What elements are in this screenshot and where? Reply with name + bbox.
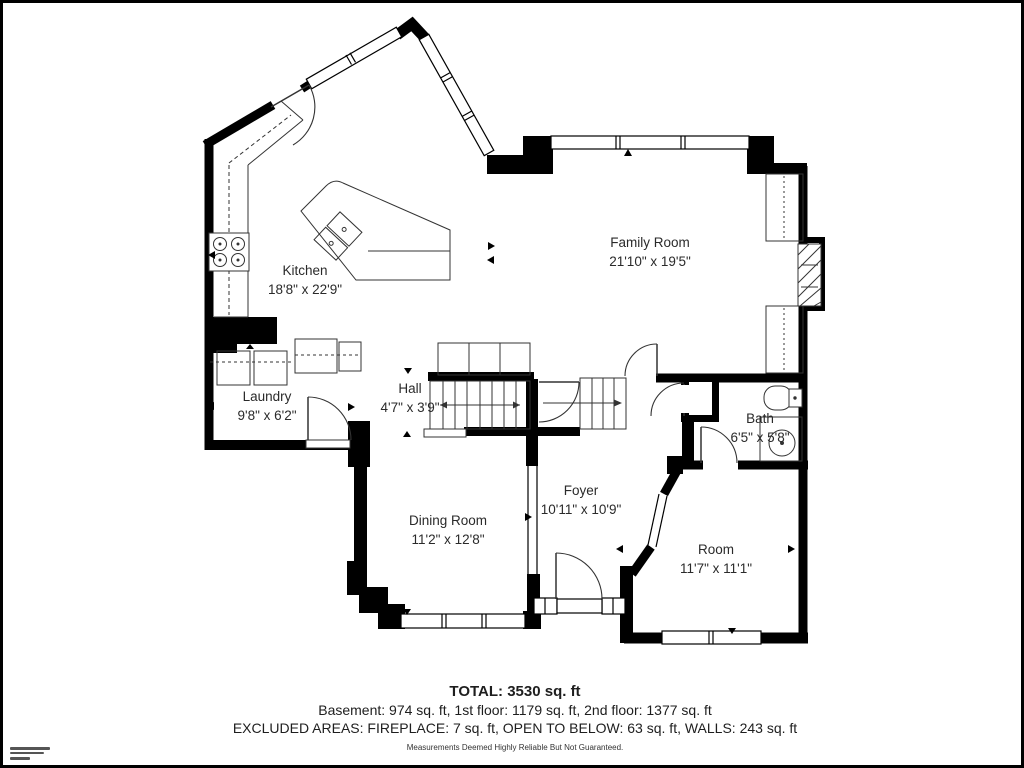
room-label-kitchen: Kitchen 18'8" x 22'9" <box>268 261 342 299</box>
family-room-window <box>551 136 749 149</box>
fine-print-illegible <box>10 747 56 762</box>
floor-areas: Basement: 974 sq. ft, 1st floor: 1179 sq… <box>3 701 1024 719</box>
kitchen-exterior-door <box>271 85 315 145</box>
excluded-areas: EXCLUDED AREAS: FIREPLACE: 7 sq. ft, OPE… <box>3 719 1024 737</box>
room-name: Laundry <box>237 387 296 406</box>
fireplace <box>798 244 821 306</box>
toilet <box>764 386 802 410</box>
room-name: Hall <box>380 379 439 398</box>
room-name: Kitchen <box>268 261 342 280</box>
room-label-foyer: Foyer 10'11" x 10'9" <box>541 481 622 519</box>
disclaimer: Measurements Deemed Highly Reliable But … <box>3 741 1024 755</box>
basement-stairs-door <box>539 382 579 422</box>
room-label-room: Room 11'7" x 11'1" <box>680 540 752 578</box>
staircase <box>424 343 626 437</box>
washer-dryer <box>210 351 293 385</box>
room-dims: 11'7" x 11'1" <box>680 559 752 578</box>
family-to-hall-door <box>625 344 657 376</box>
room-dims: 4'7" x 3'9" <box>380 398 439 417</box>
floor-plan-drawing <box>3 3 1024 768</box>
room-dims: 18'8" x 22'9" <box>268 280 342 299</box>
room-label-laundry: Laundry 9'8" x 6'2" <box>237 387 296 425</box>
front-door <box>556 553 602 599</box>
floor-plan-page: Kitchen 18'8" x 22'9" Family Room 21'10"… <box>0 0 1024 768</box>
room-name: Room <box>680 540 752 559</box>
room-name: Family Room <box>609 233 691 252</box>
builtin-cabinets <box>766 174 803 373</box>
room-name: Dining Room <box>409 511 487 530</box>
room-dims: 21'10" x 19'5" <box>609 252 691 271</box>
room-dims: 11'2" x 12'8" <box>409 530 487 549</box>
family-diagonal-window <box>419 34 494 155</box>
room-dims: 9'8" x 6'2" <box>237 406 296 425</box>
room-dims: 10'11" x 10'9" <box>541 500 622 519</box>
room-dims: 6'5" x 5'8" <box>730 428 789 447</box>
kitchen-window <box>306 27 401 89</box>
room-label-hall: Hall 4'7" x 3'9" <box>380 379 439 417</box>
front-door-sidelights <box>534 598 625 614</box>
room-name: Foyer <box>541 481 622 500</box>
room-label-bath: Bath 6'5" x 5'8" <box>730 409 789 447</box>
hall-closet-door <box>651 383 684 416</box>
hall-cabinets <box>295 339 361 373</box>
total-area: TOTAL: 3530 sq. ft <box>3 683 1024 701</box>
laundry-door <box>306 397 351 448</box>
room-label-dining-room: Dining Room 11'2" x 12'8" <box>409 511 487 549</box>
dining-window <box>401 614 525 628</box>
area-summary: TOTAL: 3530 sq. ft Basement: 974 sq. ft,… <box>3 683 1024 755</box>
room-label-family-room: Family Room 21'10" x 19'5" <box>609 233 691 271</box>
room-window <box>662 631 761 644</box>
room-name: Bath <box>730 409 789 428</box>
hall-closet-interior <box>681 382 712 415</box>
